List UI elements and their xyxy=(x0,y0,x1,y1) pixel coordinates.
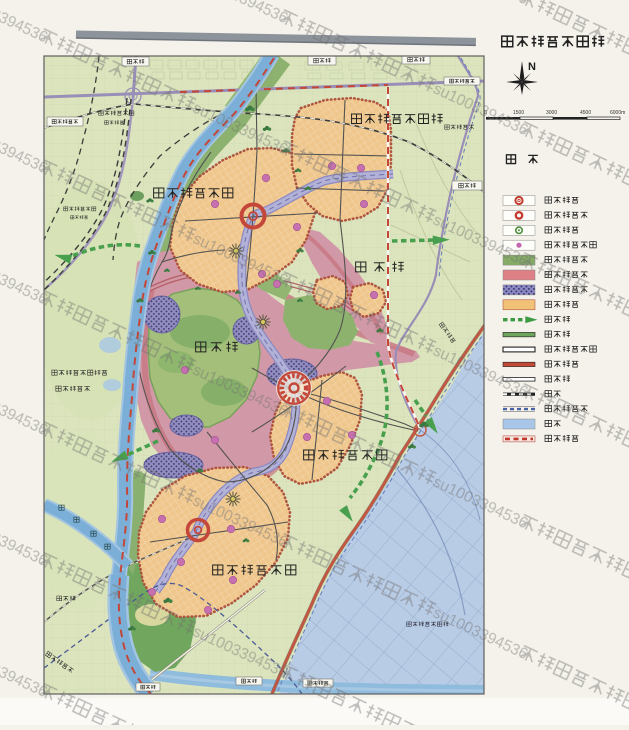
svg-text:3000: 3000 xyxy=(546,110,557,116)
svg-text:4500: 4500 xyxy=(580,110,591,116)
svg-text:1500: 1500 xyxy=(513,110,524,116)
svg-text:N: N xyxy=(528,61,536,73)
svg-text:0: 0 xyxy=(484,110,487,116)
svg-text:6000m: 6000m xyxy=(610,110,625,116)
